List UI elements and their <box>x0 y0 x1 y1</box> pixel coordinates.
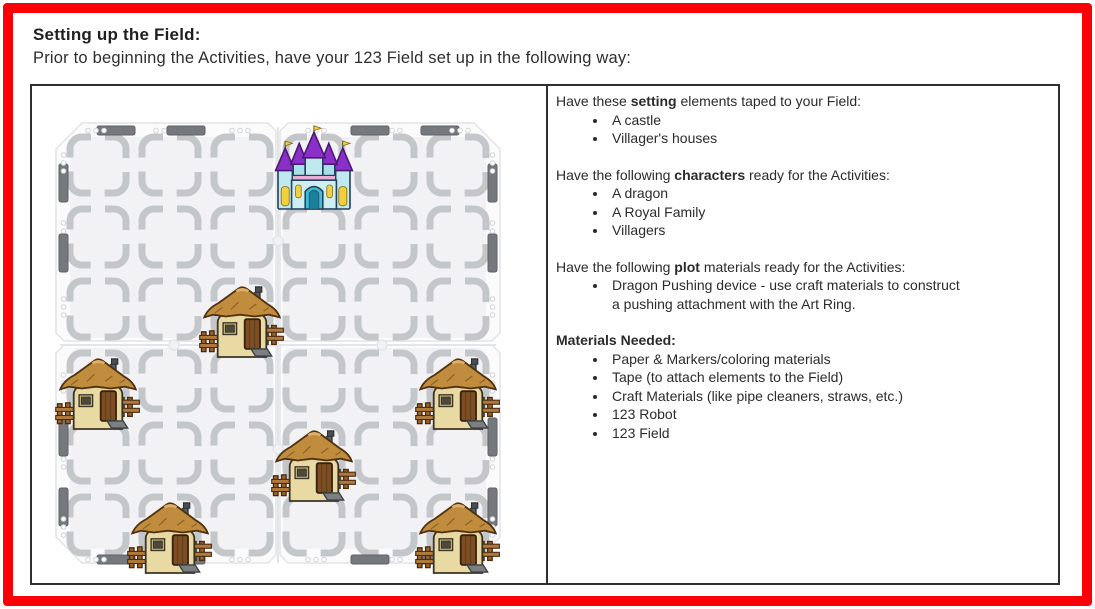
page-subtitle: Prior to beginning the Activities, have … <box>33 49 631 68</box>
plot-section: Have the following plot materials ready … <box>556 258 1044 314</box>
list-item: Villager's houses <box>608 129 964 148</box>
bullet-list: A dragon A Royal Family Villagers <box>556 184 1044 240</box>
list-item: 123 Field <box>608 424 964 443</box>
list-item: Dragon Pushing device - use craft materi… <box>608 276 964 313</box>
field-image <box>56 123 500 567</box>
page-title: Setting up the Field: <box>33 25 201 45</box>
content-table: Have these setting elements taped to you… <box>30 84 1060 585</box>
list-item: Tape (to attach elements to the Field) <box>608 368 964 387</box>
bullet-list: Dragon Pushing device - use craft materi… <box>556 276 1044 313</box>
setting-section: Have these setting elements taped to you… <box>556 92 1044 148</box>
field-cell <box>32 86 548 583</box>
instructions-panel: Have these setting elements taped to you… <box>548 86 1058 583</box>
list-item: Paper & Markers/coloring materials <box>608 350 964 369</box>
section-intro: Have the following plot materials ready … <box>556 258 1044 277</box>
bullet-list: Paper & Markers/coloring materials Tape … <box>556 350 1044 443</box>
materials-section: Materials Needed: Paper & Markers/colori… <box>556 331 1044 442</box>
list-item: Villagers <box>608 221 964 240</box>
materials-heading: Materials Needed: <box>556 331 1044 350</box>
list-item: A castle <box>608 111 964 130</box>
section-intro: Have these setting elements taped to you… <box>556 92 1044 111</box>
list-item: A dragon <box>608 184 964 203</box>
section-intro: Have the following characters ready for … <box>556 166 1044 185</box>
list-item: Craft Materials (like pipe cleaners, str… <box>608 387 964 406</box>
bullet-list: A castle Villager's houses <box>556 111 1044 148</box>
list-item: 123 Robot <box>608 405 964 424</box>
list-item: A Royal Family <box>608 203 964 222</box>
characters-section: Have the following characters ready for … <box>556 166 1044 240</box>
field-svg <box>56 123 500 567</box>
